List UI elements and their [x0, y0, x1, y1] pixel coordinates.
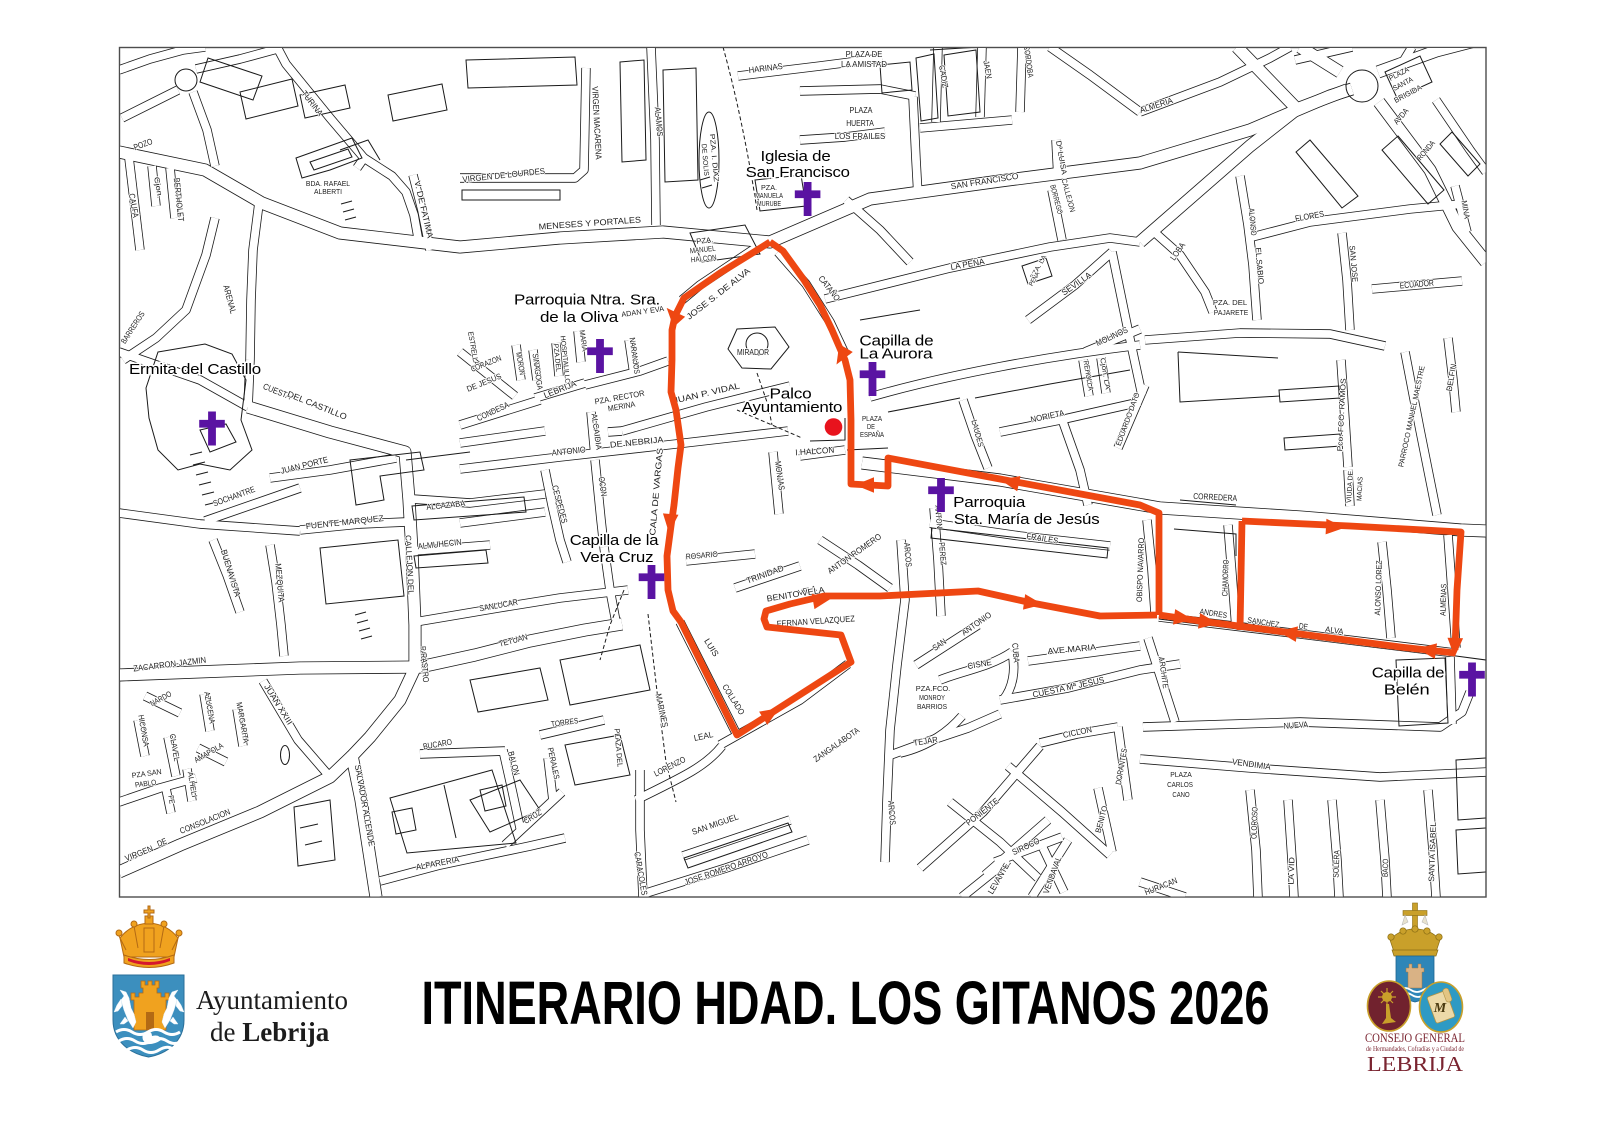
svg-text:MIRADOR: MIRADOR — [737, 348, 769, 357]
svg-text:BACO: BACO — [1381, 859, 1391, 878]
svg-text:ARCOS: ARCOS — [902, 542, 914, 567]
svg-text:MURUBE: MURUBE — [757, 201, 781, 208]
svg-text:La Aurora: La Aurora — [859, 345, 933, 362]
svg-text:DE: DE — [867, 424, 875, 431]
svg-text:Vera Cruz: Vera Cruz — [580, 549, 653, 566]
svg-text:LEBRIJA: LEBRIJA — [1367, 1052, 1464, 1076]
svg-text:MONROY: MONROY — [919, 693, 945, 702]
svg-text:CARLOS: CARLOS — [1167, 780, 1193, 789]
svg-text:PLAZA DE: PLAZA DE — [846, 50, 883, 59]
svg-text:ALBERTI: ALBERTI — [314, 189, 342, 196]
svg-text:Ermita del Castillo: Ermita del Castillo — [129, 361, 261, 378]
svg-text:Ayuntamiento: Ayuntamiento — [742, 399, 843, 416]
svg-text:MACIAS: MACIAS — [1356, 476, 1364, 501]
svg-text:de Lebrija: de Lebrija — [210, 1017, 330, 1047]
svg-text:NUEVA: NUEVA — [1283, 719, 1308, 731]
svg-text:Parroquia Ntra. Sra.: Parroquia Ntra. Sra. — [514, 291, 660, 308]
svg-text:PLAZA: PLAZA — [1170, 770, 1192, 779]
svg-text:BARRIOS: BARRIOS — [917, 702, 947, 711]
svg-text:DE: DE — [1298, 621, 1308, 631]
svg-text:ITINERARIO HDAD. LOS GITANOS 2: ITINERARIO HDAD. LOS GITANOS 2026 — [422, 969, 1270, 1037]
svg-text:SOLERA: SOLERA — [1332, 849, 1342, 877]
svg-text:PZA.FCO.: PZA.FCO. — [916, 684, 950, 693]
svg-text:MANUELA: MANUELA — [755, 193, 783, 200]
svg-text:CUBA: CUBA — [1010, 643, 1022, 664]
svg-text:ESPAÑA: ESPAÑA — [860, 430, 884, 439]
svg-text:Iglesia de: Iglesia de — [761, 148, 831, 165]
svg-text:ARCOS: ARCOS — [886, 800, 898, 825]
svg-text:OLOROSO: OLOROSO — [1249, 807, 1259, 839]
svg-text:PAJARETE: PAJARETE — [1214, 308, 1248, 317]
svg-text:ALONSO LOPEZ: ALONSO LOPEZ — [1373, 560, 1384, 615]
svg-text:FE: FE — [166, 795, 176, 805]
svg-text:ALMENAS: ALMENAS — [1438, 584, 1448, 616]
svg-text:Belén: Belén — [1384, 681, 1430, 698]
svg-text:LA AMISTAD: LA AMISTAD — [841, 60, 887, 69]
svg-text:Parroquia: Parroquia — [953, 494, 1026, 511]
svg-text:Sta. María de Jesús: Sta. María de Jesús — [954, 511, 1100, 528]
svg-text:CHAMORRO: CHAMORRO — [1220, 559, 1230, 596]
svg-text:LOS FRAILES: LOS FRAILES — [835, 132, 886, 141]
svg-text:PLAZA: PLAZA — [850, 106, 874, 115]
svg-text:Capilla de la: Capilla de la — [570, 532, 659, 549]
svg-text:PZA. DEL: PZA. DEL — [1213, 298, 1247, 307]
svg-text:M: M — [1433, 1001, 1447, 1016]
svg-text:CONSEJO GENERAL: CONSEJO GENERAL — [1365, 1031, 1465, 1045]
svg-text:BDA. RAFAEL: BDA. RAFAEL — [306, 181, 350, 188]
svg-text:Ayuntamiento: Ayuntamiento — [196, 985, 348, 1015]
svg-text:PLAZA: PLAZA — [862, 416, 882, 423]
svg-text:LA VID: LA VID — [1287, 857, 1297, 885]
svg-text:PZA.: PZA. — [761, 185, 777, 192]
svg-text:CANO: CANO — [1172, 790, 1189, 799]
svg-text:Capilla de: Capilla de — [1372, 664, 1445, 681]
svg-text:HUERTA: HUERTA — [846, 119, 874, 128]
svg-text:San Francisco: San Francisco — [746, 164, 850, 181]
svg-text:de la Oliva: de la Oliva — [540, 309, 619, 326]
